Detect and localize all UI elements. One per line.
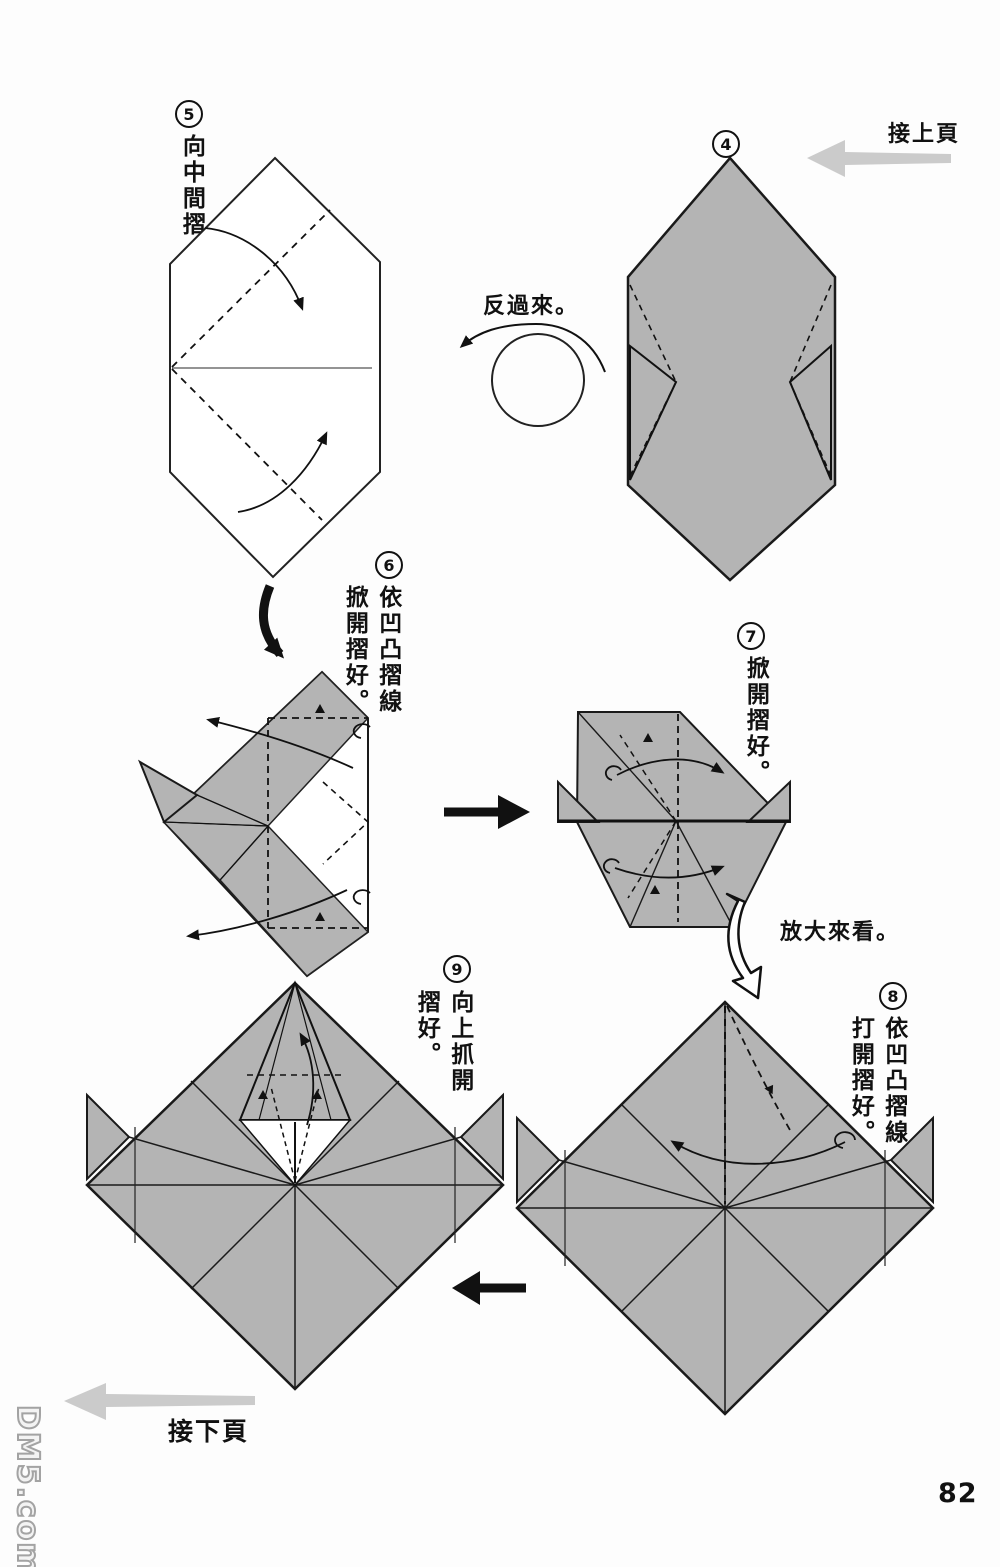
step5-diagram: [150, 150, 390, 590]
step8-diagram: [505, 990, 945, 1420]
step4-diagram: [610, 150, 850, 590]
step5-number-badge: 5: [175, 100, 203, 128]
origami-instruction-page: 接上頁 4 反過來。 5 向中間摺。: [0, 0, 1000, 1567]
watermark-logo: DM5.com: [10, 1405, 45, 1567]
next-page-label: 接下頁: [168, 1412, 249, 1448]
step-flow-arrow-right-icon: [438, 785, 533, 840]
step6-number-badge: 6: [375, 551, 403, 579]
enlarge-label: 放大來看。: [780, 914, 900, 946]
step9-diagram: [75, 975, 515, 1400]
step6-diagram: [125, 650, 405, 985]
enlarge-arrow-icon: [712, 888, 787, 1003]
turn-over-icon: [440, 300, 615, 440]
page-number: 82: [938, 1478, 978, 1509]
step7-number-badge: 7: [737, 622, 765, 650]
